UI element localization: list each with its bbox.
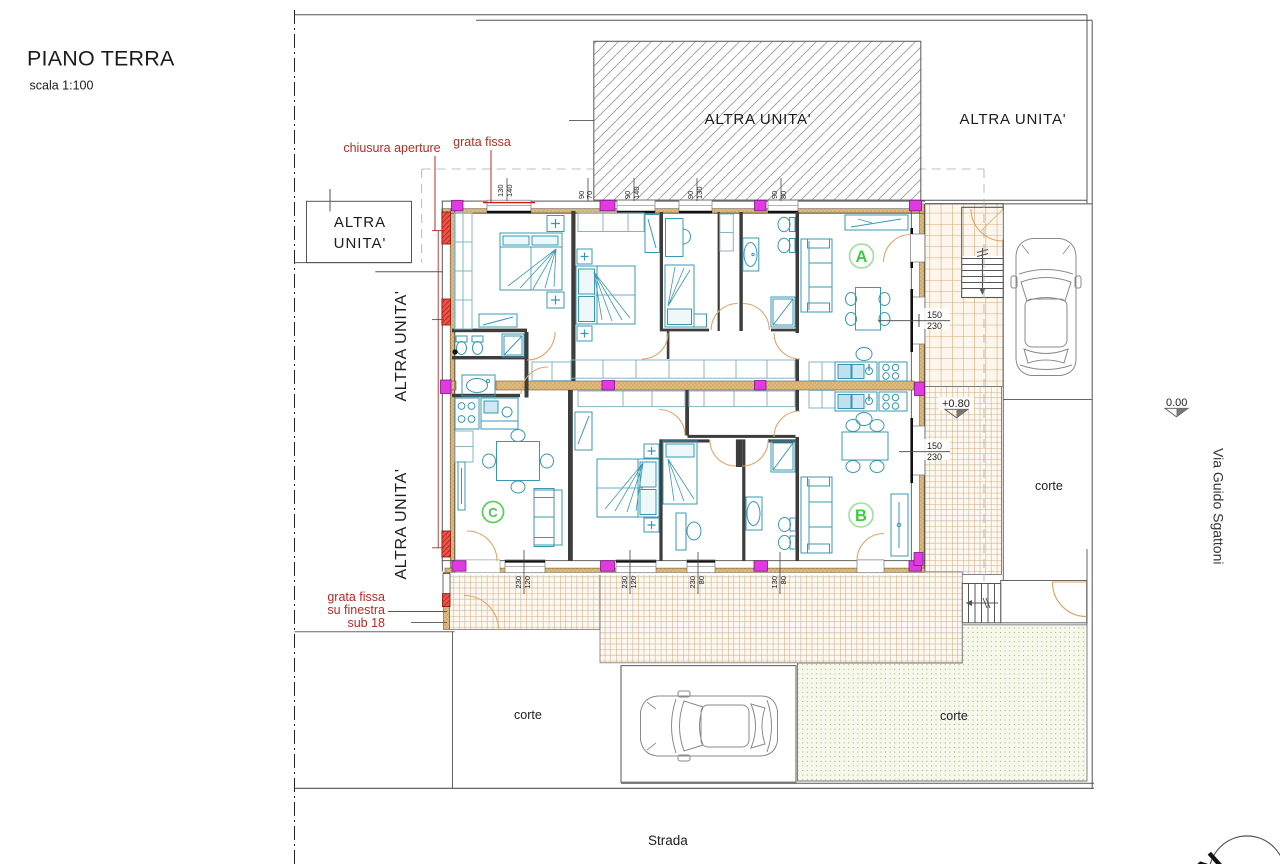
svg-text:120: 120 <box>523 576 532 589</box>
svg-text:UNITA': UNITA' <box>334 235 387 252</box>
svg-text:150: 150 <box>927 310 942 320</box>
svg-text:120: 120 <box>629 576 638 589</box>
svg-text:230: 230 <box>927 321 942 331</box>
svg-text:corte: corte <box>1035 479 1063 493</box>
svg-text:230: 230 <box>620 576 629 589</box>
svg-text:C: C <box>488 505 498 520</box>
svg-text:90: 90 <box>623 191 632 199</box>
svg-text:corte: corte <box>940 709 968 723</box>
svg-text:+0.80: +0.80 <box>942 398 970 410</box>
svg-text:ALTRA UNITA': ALTRA UNITA' <box>393 290 410 401</box>
svg-text:80: 80 <box>697 576 706 584</box>
svg-text:ALTRA UNITA': ALTRA UNITA' <box>705 111 812 128</box>
svg-text:grata fissa: grata fissa <box>453 135 511 149</box>
svg-text:chiusura aperture: chiusura aperture <box>343 141 440 155</box>
svg-text:corte: corte <box>514 708 542 722</box>
svg-text:140: 140 <box>632 186 641 199</box>
svg-text:90: 90 <box>686 191 695 199</box>
svg-text:90: 90 <box>770 191 779 199</box>
svg-text:80: 80 <box>779 191 788 199</box>
svg-text:0.00: 0.00 <box>1166 397 1187 409</box>
svg-text:230: 230 <box>514 576 523 589</box>
svg-text:230: 230 <box>927 452 942 462</box>
svg-text:Strada: Strada <box>648 833 688 848</box>
svg-text:140: 140 <box>505 184 514 197</box>
svg-text:80: 80 <box>779 576 788 584</box>
svg-text:grata fissa: grata fissa <box>327 590 385 604</box>
svg-text:130: 130 <box>695 186 704 199</box>
svg-text:PIANO TERRA: PIANO TERRA <box>27 47 175 71</box>
svg-text:scala 1:100: scala 1:100 <box>30 79 94 93</box>
svg-text:150: 150 <box>927 441 942 451</box>
svg-text:sub 18: sub 18 <box>347 616 385 630</box>
svg-text:su finestra: su finestra <box>327 603 385 617</box>
svg-text:ALTRA UNITA': ALTRA UNITA' <box>393 468 410 579</box>
svg-text:B: B <box>855 507 867 525</box>
svg-text:A: A <box>856 248 868 266</box>
svg-text:ALTRA UNITA': ALTRA UNITA' <box>960 111 1067 128</box>
svg-text:Via Guido Sgattoni: Via Guido Sgattoni <box>1211 448 1227 565</box>
svg-text:130: 130 <box>496 184 505 197</box>
svg-text:230: 230 <box>688 576 697 589</box>
svg-text:130: 130 <box>770 576 779 589</box>
svg-text:70: 70 <box>585 191 594 199</box>
svg-text:ALTRA: ALTRA <box>334 214 386 231</box>
